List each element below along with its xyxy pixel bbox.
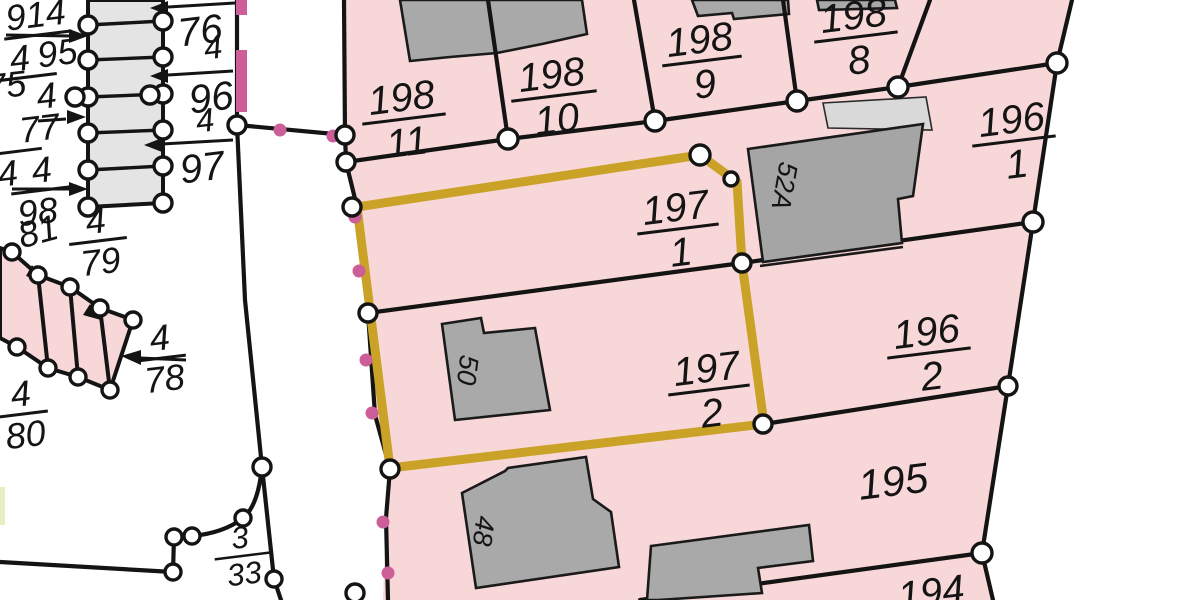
label-house-50: 50 xyxy=(451,353,484,386)
sliver-parcel xyxy=(0,487,5,525)
parcel-label-198-11-denominator: 11 xyxy=(384,118,431,167)
label-house-48: 48 xyxy=(467,514,500,547)
parcel-label-3-33-denominator: 33 xyxy=(225,554,263,593)
parcel-label-4-80-denominator: 80 xyxy=(3,412,48,458)
cadastral-map: 1981119810198919881961197119721962479478… xyxy=(0,0,1200,600)
parcel-label-95-4-numerator: 95 xyxy=(35,30,81,76)
label-195: 195 xyxy=(855,454,931,509)
parcel-label-4-79-denominator: 79 xyxy=(78,239,123,285)
parcel-label-77-4-numerator: 77 xyxy=(17,105,64,151)
parcel-label-198-10-denominator: 10 xyxy=(532,95,582,144)
parcel-label-4-78-denominator: 78 xyxy=(142,356,187,402)
label-97: 97 xyxy=(177,143,228,192)
